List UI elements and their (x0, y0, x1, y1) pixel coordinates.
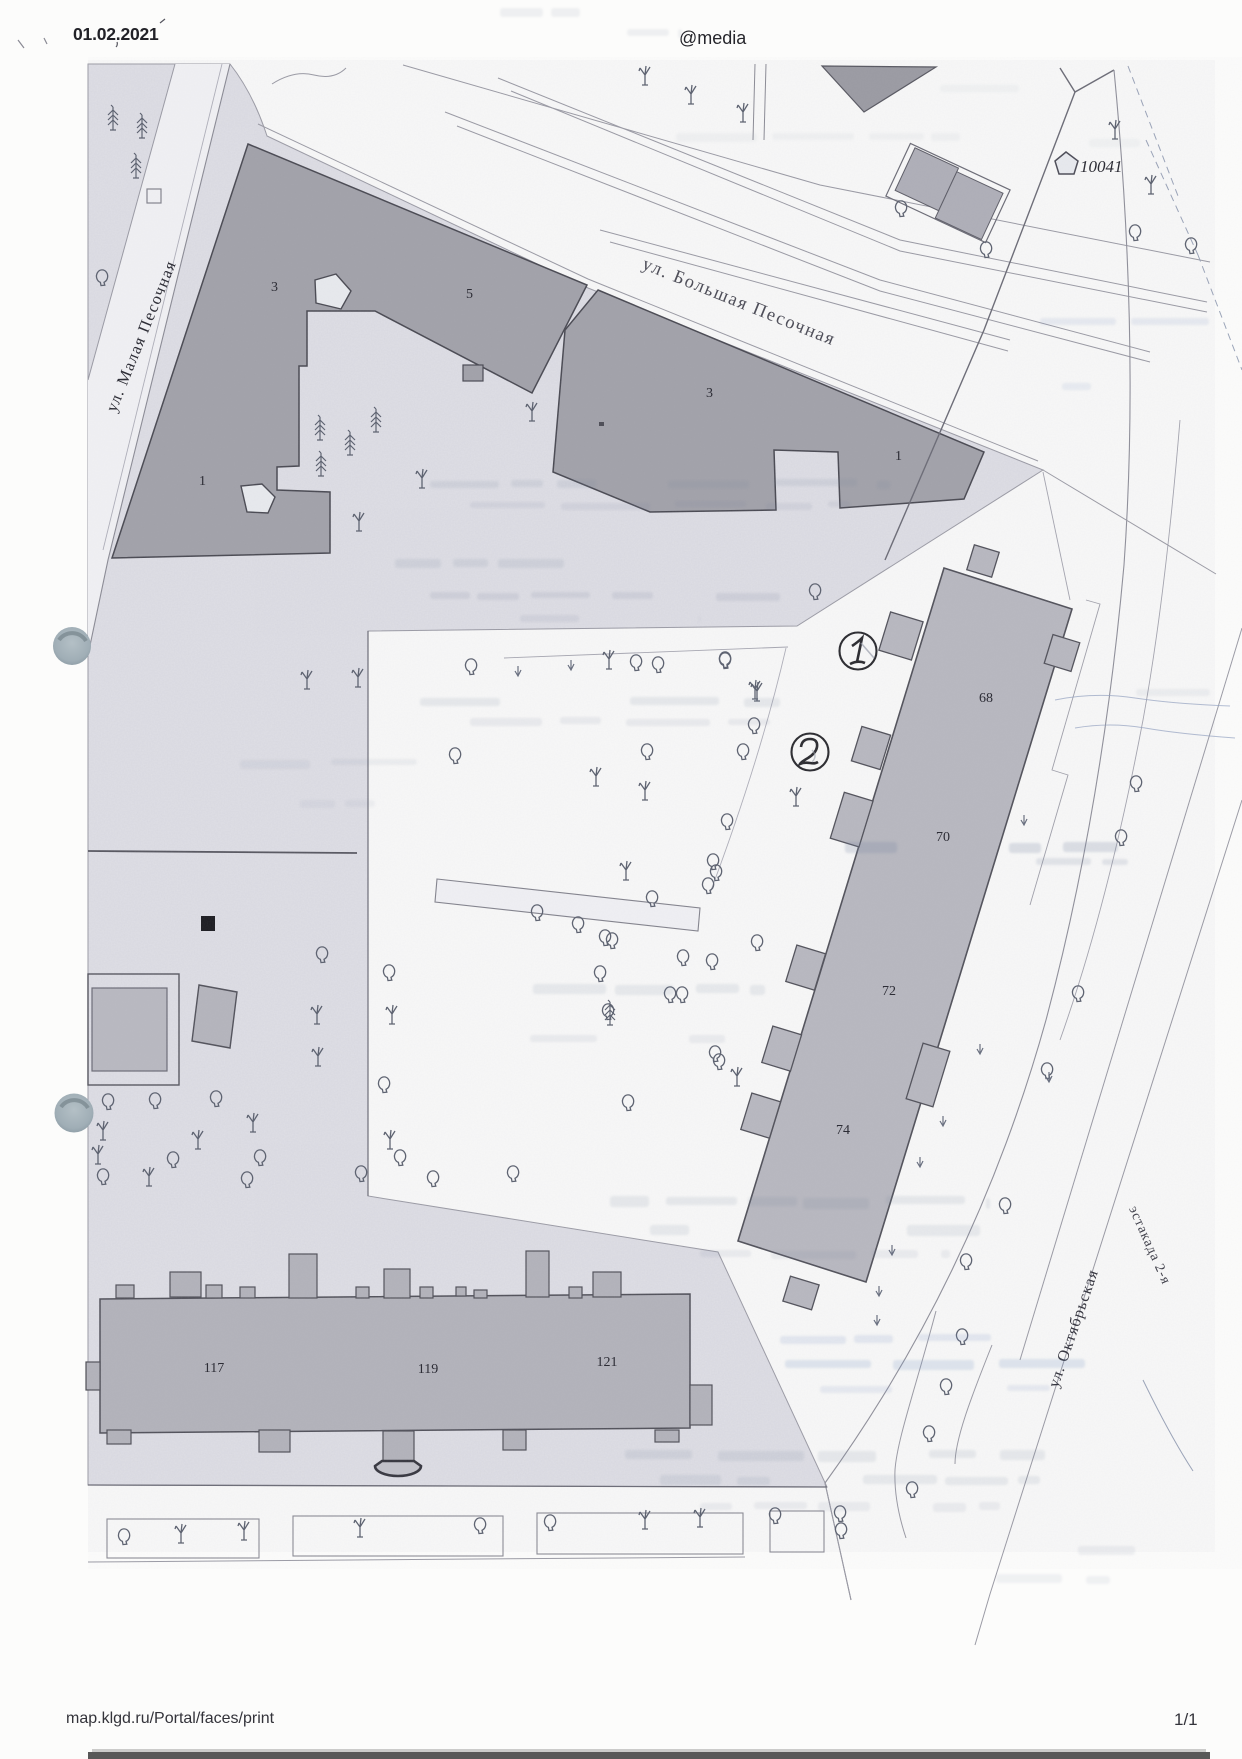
svg-text:map.klgd.ru/Portal/faces/print: map.klgd.ru/Portal/faces/print (66, 1710, 275, 1727)
svg-text:01.02.2021: 01.02.2021 (73, 24, 159, 44)
svg-text:1/1: 1/1 (1174, 1710, 1198, 1729)
svg-text:@media: @media (679, 28, 747, 48)
